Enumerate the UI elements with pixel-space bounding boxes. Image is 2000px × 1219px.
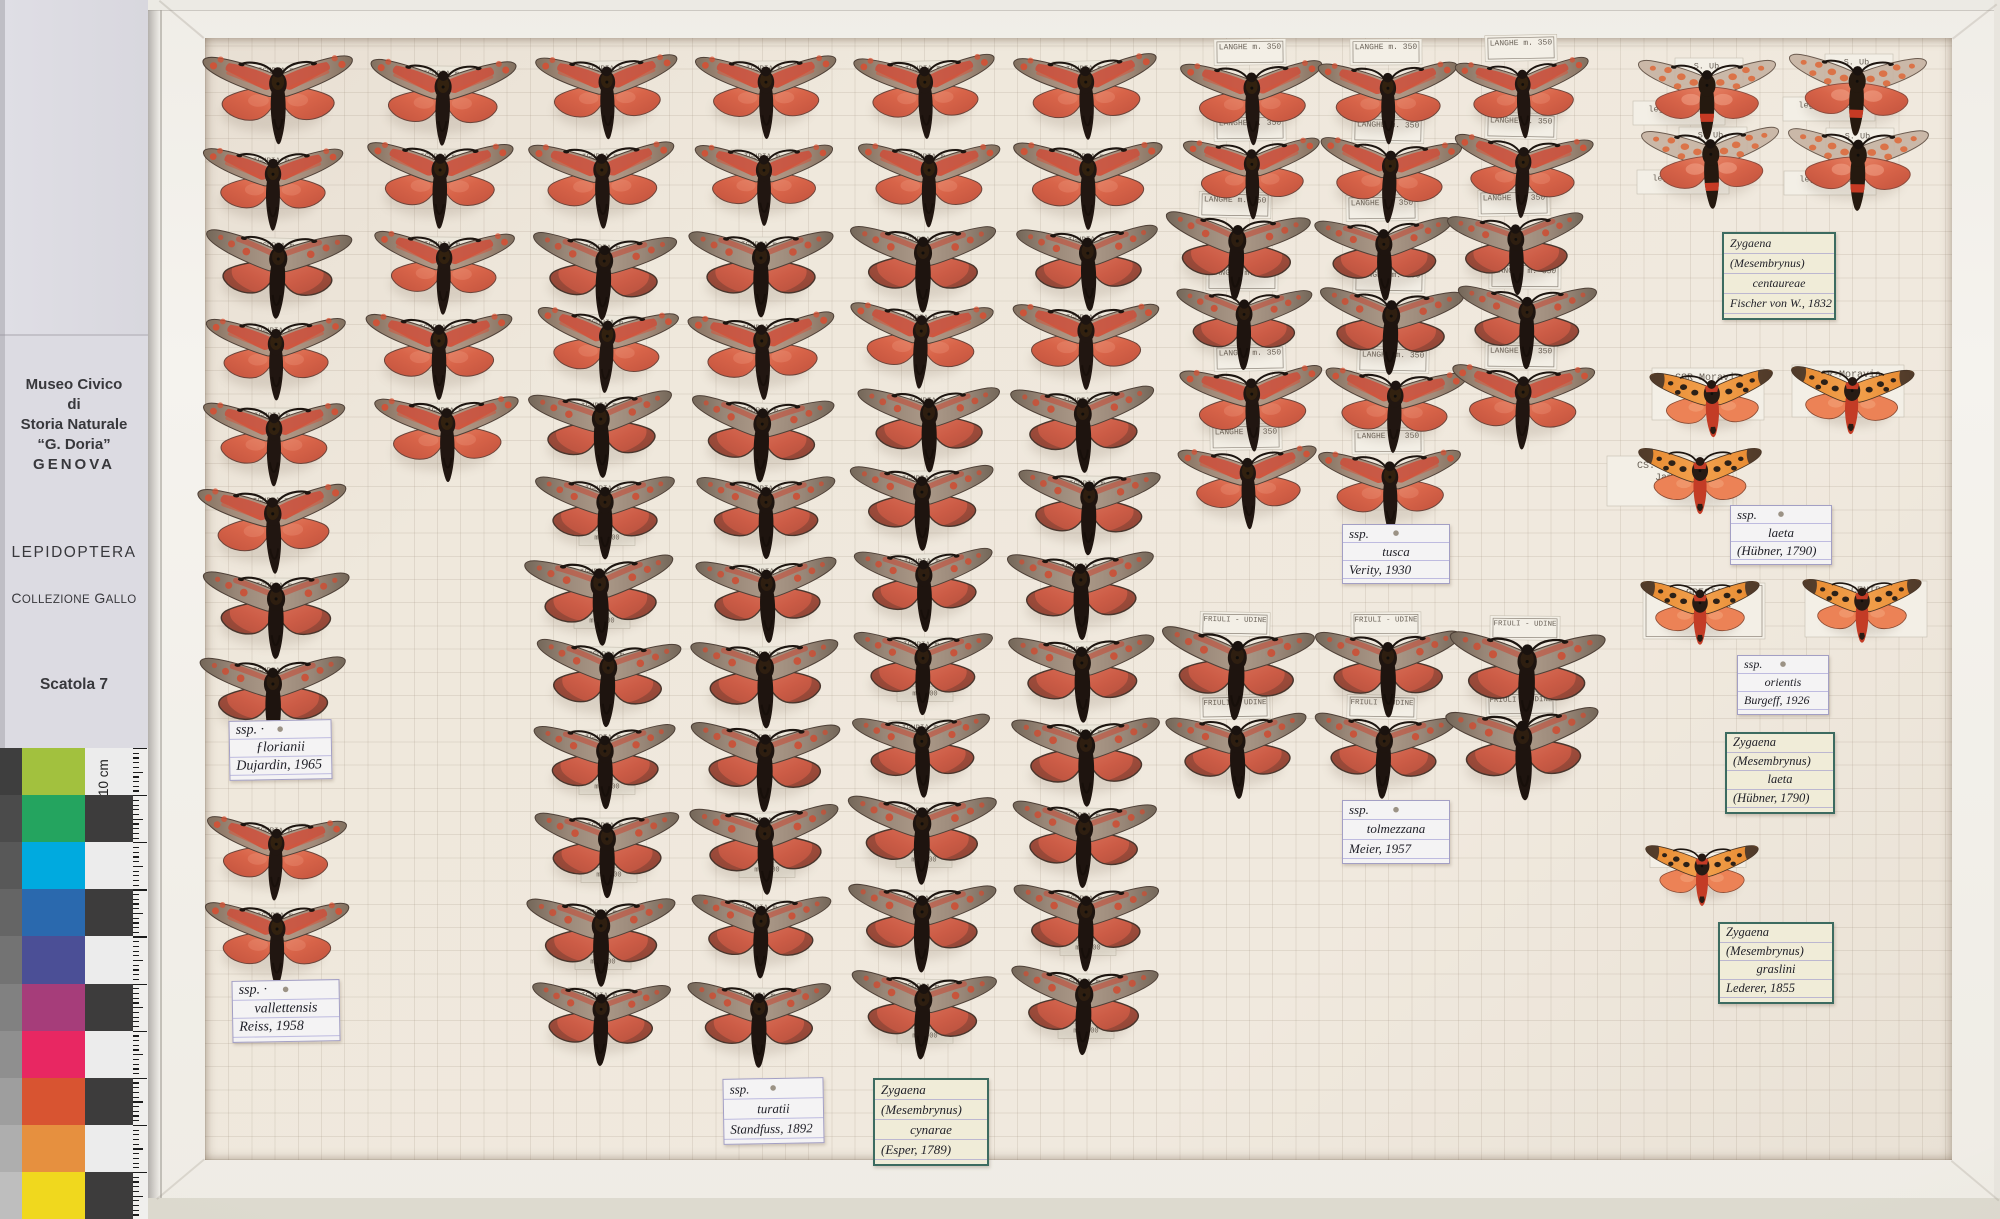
svg-text:LANGHE m. 350: LANGHE m. 350 <box>1355 43 1418 52</box>
svg-text:LANGHE m. 350: LANGHE m. 350 <box>1219 43 1282 53</box>
svg-text:LANGHE m. 350: LANGHE m. 350 <box>1490 38 1553 48</box>
svg-text:FRIULI - UDINE: FRIULI - UDINE <box>1354 616 1418 624</box>
svg-text:FRIULI - UDINE: FRIULI - UDINE <box>1203 616 1267 625</box>
svg-text:FRIULI - UDINE: FRIULI - UDINE <box>1493 620 1557 629</box>
